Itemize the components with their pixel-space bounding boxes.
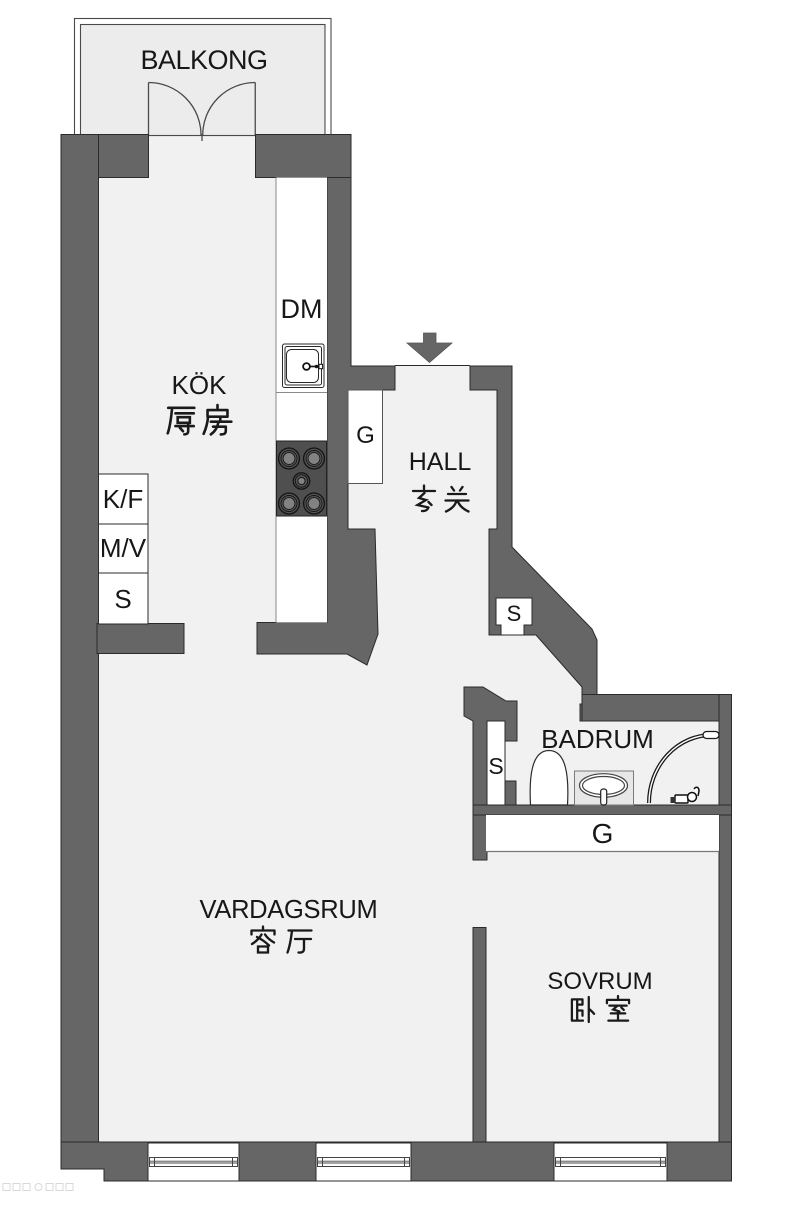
svg-text:G: G [356, 422, 375, 449]
svg-text:M/V: M/V [100, 533, 147, 563]
svg-text:BALKONG: BALKONG [140, 45, 267, 75]
svg-text:SOVRUM: SOVRUM [547, 968, 652, 995]
svg-text:VARDAGSRUM: VARDAGSRUM [200, 896, 378, 924]
svg-text:S: S [488, 753, 503, 779]
svg-text:S: S [507, 601, 522, 626]
svg-text:K/F: K/F [103, 484, 143, 514]
svg-text:BADRUM: BADRUM [541, 724, 654, 754]
svg-text:KÖK: KÖK [172, 370, 228, 400]
svg-text:S: S [114, 584, 131, 614]
svg-text:G: G [592, 818, 614, 849]
svg-text:DM: DM [281, 294, 323, 324]
svg-text:HALL: HALL [409, 448, 472, 476]
